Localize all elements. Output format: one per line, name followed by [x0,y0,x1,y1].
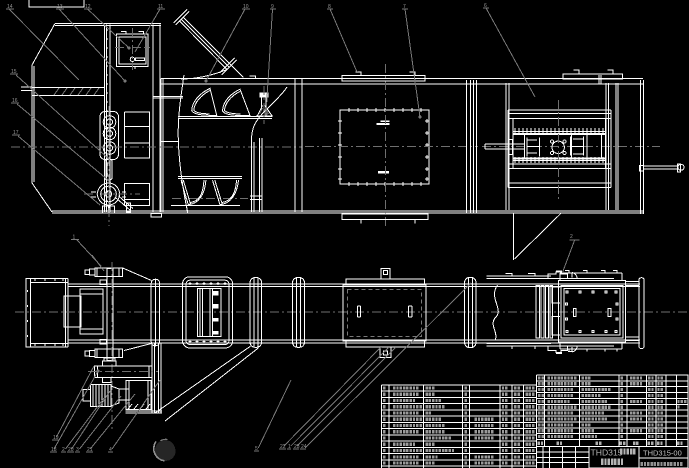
svg-text:THD315: THD315 [591,448,623,458]
svg-text:2: 2 [570,234,573,240]
svg-text:THD315-00: THD315-00 [643,449,682,458]
